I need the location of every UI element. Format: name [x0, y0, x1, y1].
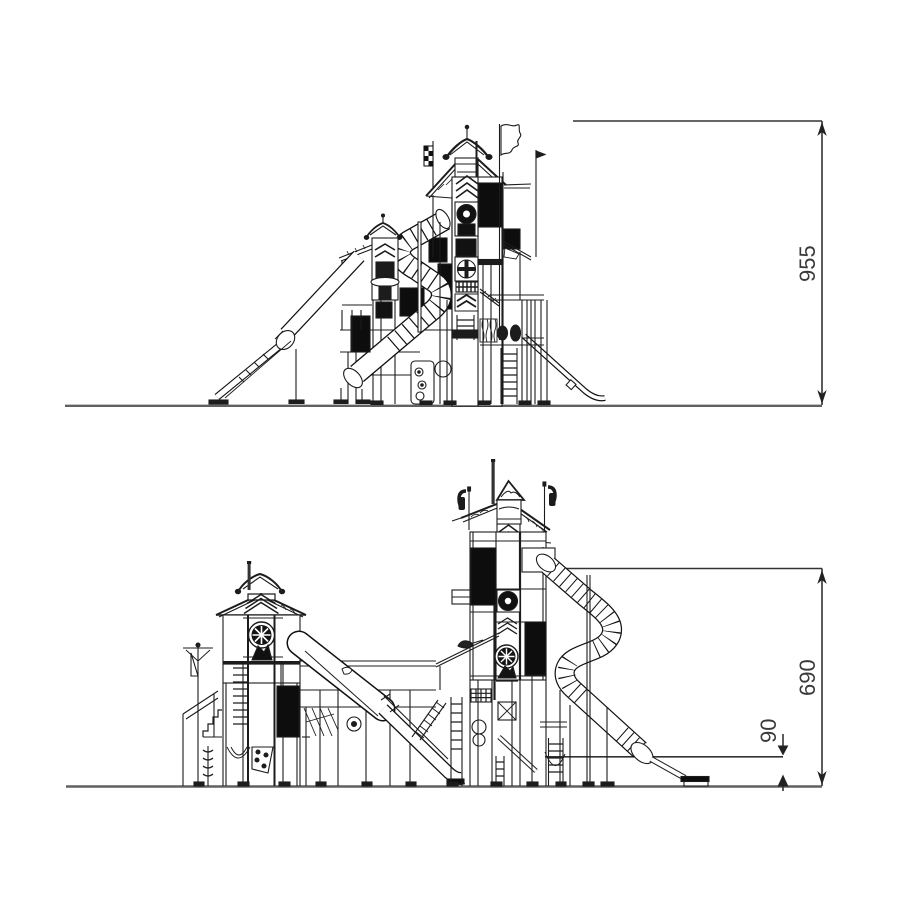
svg-text:690: 690: [795, 659, 820, 696]
svg-text:90: 90: [756, 719, 781, 743]
svg-text:955: 955: [795, 245, 820, 282]
